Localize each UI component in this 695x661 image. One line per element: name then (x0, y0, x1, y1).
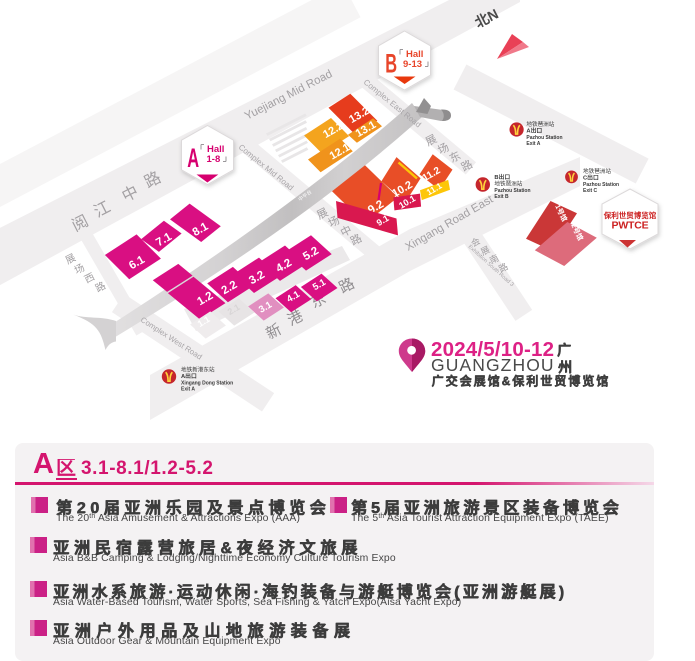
svg-text:地铁新港东站: 地铁新港东站 (181, 366, 215, 374)
svg-text:B: B (385, 48, 397, 78)
svg-text:地铁琶洲站: 地铁琶洲站 (526, 120, 554, 128)
svg-text:Exit A: Exit A (181, 387, 195, 393)
svg-text:A出口: A出口 (526, 127, 542, 135)
svg-text:PWTCE: PWTCE (612, 220, 649, 232)
svg-text:地铁琶洲站: 地铁琶洲站 (583, 167, 611, 175)
svg-text:9-13: 9-13 (403, 59, 422, 70)
svg-text:1-8: 1-8 (207, 154, 221, 165)
svg-text:Exit B: Exit B (494, 194, 509, 200)
svg-text:保利世贸博览馆: 保利世贸博览馆 (603, 210, 657, 220)
svg-text:A: A (187, 143, 199, 173)
svg-text:Exit C: Exit C (583, 188, 598, 194)
svg-text:Complex Mid Road: Complex Mid Road (237, 143, 296, 193)
svg-text:C出口: C出口 (583, 174, 599, 182)
svg-text:A出口: A出口 (181, 372, 197, 380)
svg-text:B出口: B出口 (494, 173, 510, 181)
svg-text:地铁琶洲站: 地铁琶洲站 (494, 180, 522, 188)
svg-text:Exit A: Exit A (526, 141, 540, 147)
